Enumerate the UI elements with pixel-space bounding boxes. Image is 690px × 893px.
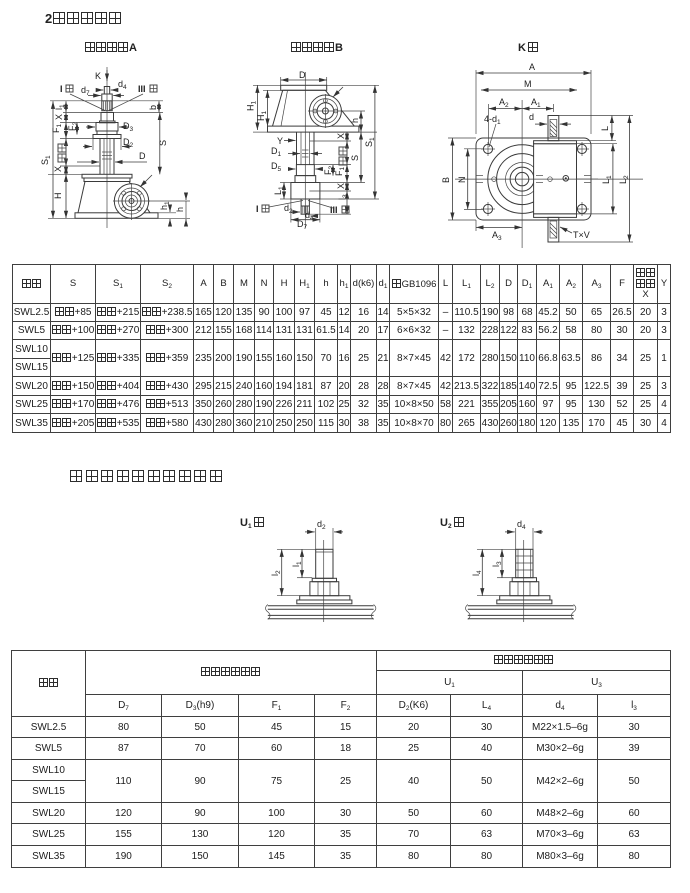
svg-text:l3: l3: [491, 561, 503, 567]
svg-text:H1: H1: [246, 101, 258, 112]
svg-text:A: A: [529, 62, 535, 72]
svg-text:A2: A2: [499, 97, 509, 109]
svg-text:N: N: [457, 177, 467, 184]
svg-text:h: h: [175, 207, 185, 212]
svg-text:X: X: [53, 166, 63, 172]
svg-text:4-d1: 4-d1: [484, 114, 501, 126]
svg-text:M: M: [524, 79, 532, 89]
svg-text:A3: A3: [492, 230, 502, 242]
svg-text:S1: S1: [40, 155, 52, 165]
svg-text:K: K: [95, 71, 101, 81]
svg-text:l4: l4: [471, 570, 483, 576]
svg-text:B: B: [441, 177, 451, 183]
svg-text:D7: D7: [297, 219, 308, 231]
svg-text:D: D: [139, 151, 146, 161]
svg-text:h: h: [350, 118, 360, 123]
svg-text:l1: l1: [54, 104, 66, 110]
svg-text:D1: D1: [271, 146, 282, 158]
svg-text:h1: h1: [159, 201, 171, 210]
svg-text:l2: l2: [270, 570, 282, 576]
svg-text:X: X: [336, 183, 346, 189]
svg-text:d2: d2: [284, 203, 293, 215]
svg-text:d: d: [529, 112, 534, 122]
svg-text:T×V: T×V: [573, 230, 590, 240]
svg-text:Y: Y: [277, 136, 283, 146]
svg-text:H: H: [53, 193, 63, 200]
svg-text:L1: L1: [273, 186, 285, 195]
svg-text:L2: L2: [618, 175, 630, 184]
svg-text:L: L: [600, 126, 610, 131]
svg-text:III: III: [330, 205, 338, 215]
svg-text:I: I: [256, 204, 259, 214]
svg-text:S1: S1: [364, 137, 376, 147]
svg-text:X: X: [336, 133, 346, 139]
svg-text:D5: D5: [271, 161, 282, 173]
svg-text:III: III: [138, 84, 146, 94]
svg-text:l1: l1: [291, 561, 303, 567]
svg-text:d4: d4: [118, 79, 127, 91]
svg-text:I: I: [60, 84, 63, 94]
svg-text:S: S: [158, 140, 168, 146]
svg-text:D2: D2: [123, 137, 134, 149]
svg-text:L1: L1: [601, 175, 613, 184]
svg-text:X: X: [54, 114, 64, 120]
svg-text:b: b: [148, 105, 158, 110]
svg-text:S: S: [350, 155, 360, 161]
svg-text:A1: A1: [531, 97, 541, 109]
svg-text:d2: d2: [317, 519, 326, 531]
svg-text:F1: F1: [334, 167, 346, 177]
svg-text:D: D: [299, 70, 306, 80]
svg-text:d4: d4: [517, 519, 526, 531]
